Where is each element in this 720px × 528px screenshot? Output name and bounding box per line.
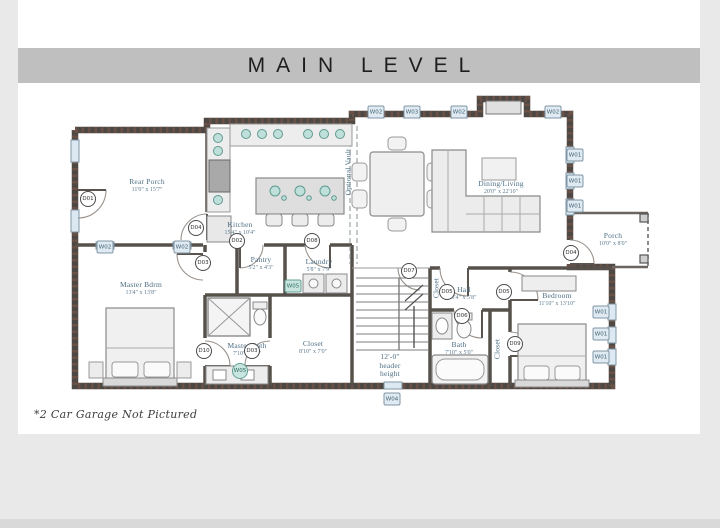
master-suite-fixtures bbox=[89, 298, 268, 386]
bottom-strip bbox=[0, 519, 720, 528]
floor-plan-drawing bbox=[0, 0, 720, 528]
hall-bath-fixtures bbox=[432, 313, 488, 384]
garage-footnote: *2 Car Garage Not Pictured bbox=[34, 408, 197, 421]
kitchen-fixtures bbox=[207, 124, 352, 242]
page: MAIN LEVEL bbox=[0, 0, 720, 528]
porch-structure bbox=[570, 213, 648, 267]
bedroom-furniture bbox=[515, 276, 589, 387]
stairs bbox=[352, 268, 430, 350]
laundry-fixtures bbox=[303, 274, 347, 293]
living-dining-furniture bbox=[352, 101, 540, 232]
